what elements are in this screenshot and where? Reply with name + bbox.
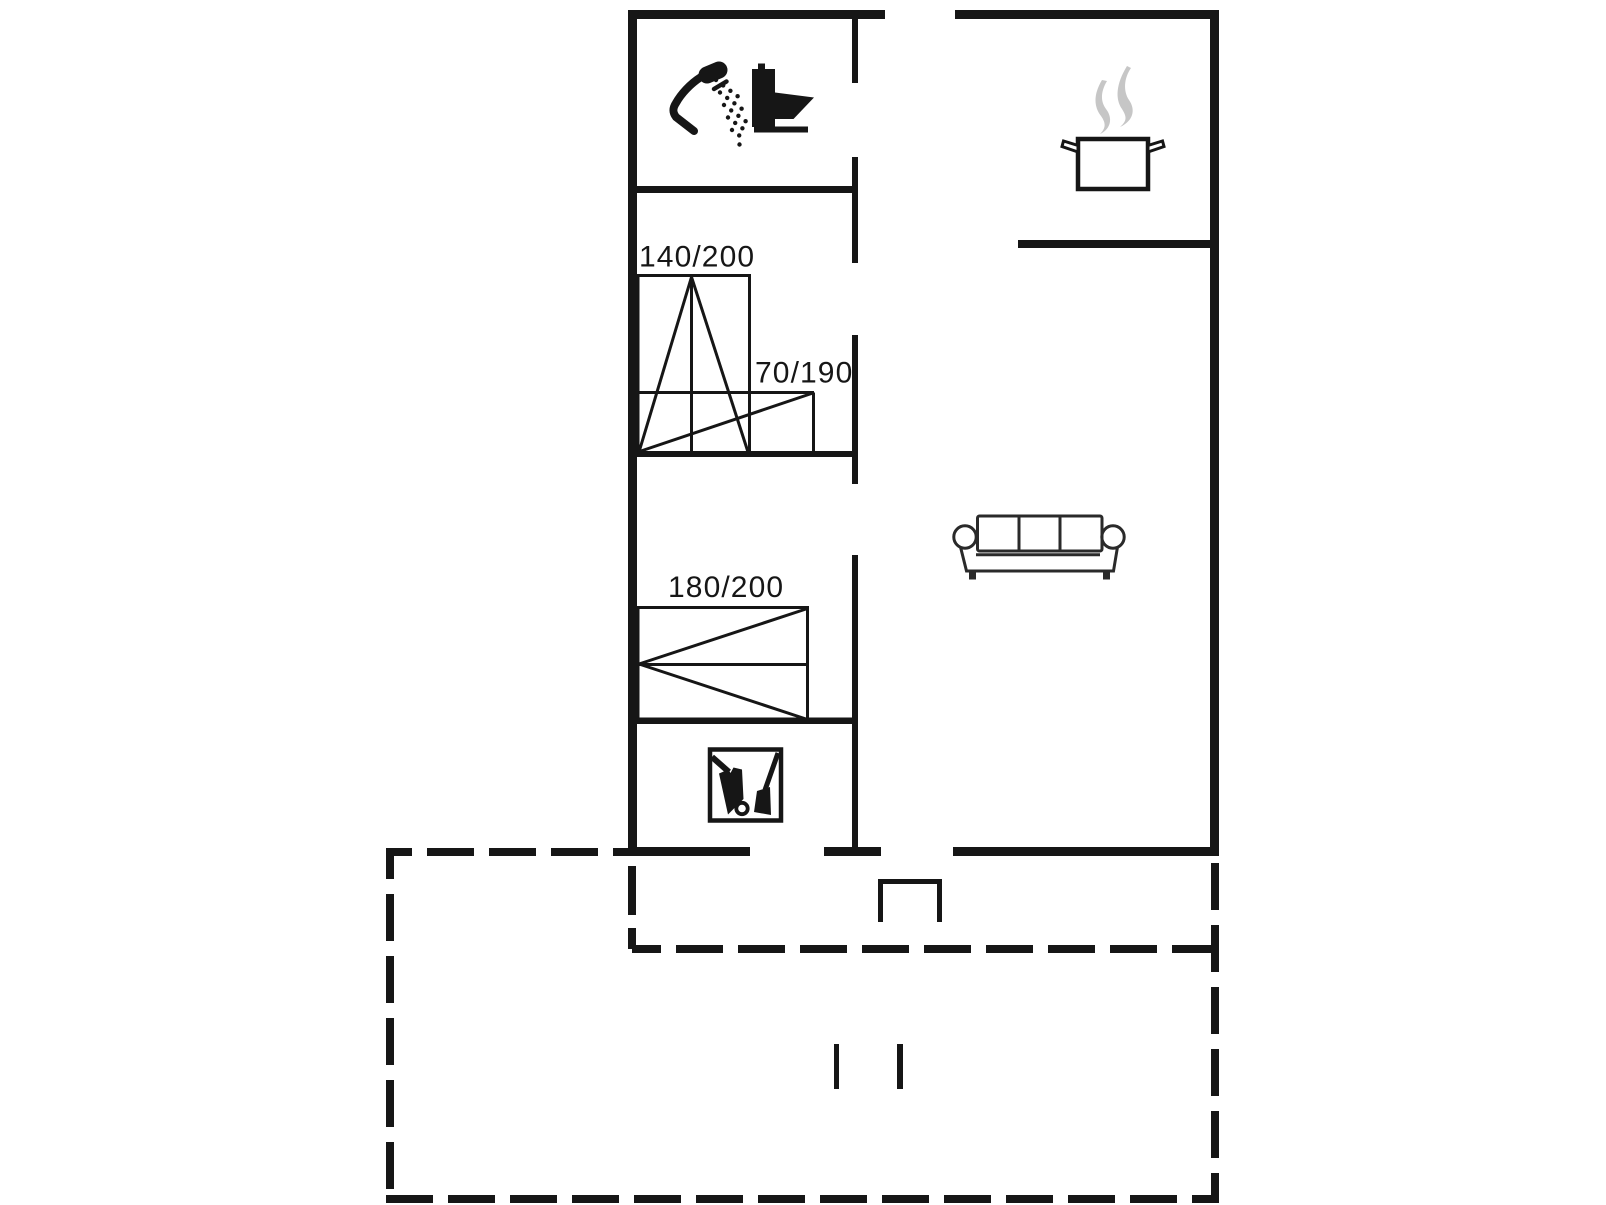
svg-text:180/200: 180/200 [668, 571, 784, 604]
svg-text:70/190: 70/190 [755, 357, 853, 390]
svg-text:140/200: 140/200 [639, 241, 755, 274]
